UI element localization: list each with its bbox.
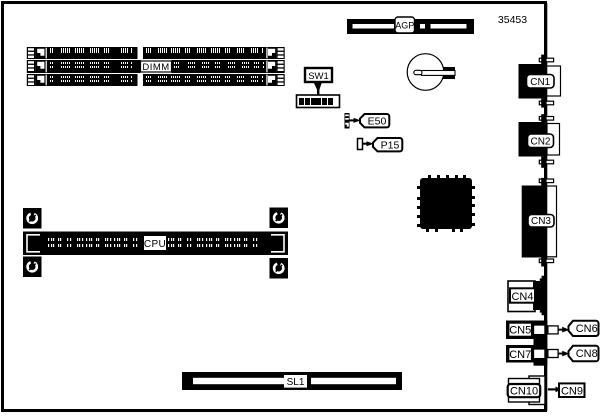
svg-text:SW1: SW1	[308, 71, 329, 82]
svg-text:CN6: CN6	[576, 323, 598, 335]
svg-text:CN4: CN4	[511, 291, 533, 303]
svg-text:CN2: CN2	[530, 136, 550, 147]
svg-text:E50: E50	[368, 116, 387, 128]
svg-text:CN10: CN10	[510, 386, 538, 398]
svg-text:CPU: CPU	[144, 239, 166, 250]
svg-text:CN3: CN3	[531, 216, 551, 227]
svg-text:P15: P15	[381, 140, 400, 152]
svg-text:CN8: CN8	[576, 348, 598, 360]
svg-text:CN1: CN1	[530, 77, 550, 88]
svg-text:SL1: SL1	[287, 377, 305, 388]
svg-text:DIMM: DIMM	[142, 62, 169, 73]
svg-text:35453: 35453	[498, 14, 527, 26]
svg-text:AGP: AGP	[395, 21, 414, 31]
svg-text:CN7: CN7	[509, 349, 531, 361]
svg-text:CN5: CN5	[509, 325, 531, 337]
svg-text:CN9: CN9	[561, 385, 583, 397]
